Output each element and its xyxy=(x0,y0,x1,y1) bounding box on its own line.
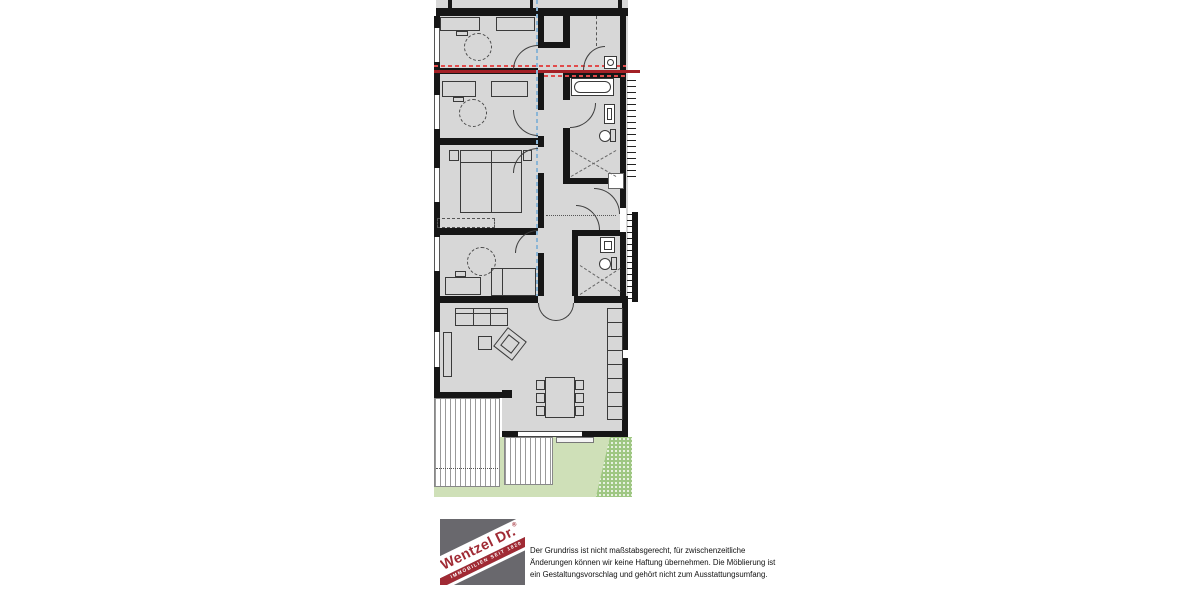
section-line-dashed xyxy=(544,75,626,77)
wall-right-exterior xyxy=(620,16,626,303)
wall-corridor-left xyxy=(538,253,544,296)
window xyxy=(434,332,440,367)
upper-cut-wall-mark xyxy=(448,0,452,8)
window xyxy=(434,28,440,62)
desk xyxy=(440,17,480,31)
wall-room-divider xyxy=(436,228,538,235)
terrace-window xyxy=(518,431,582,437)
toilet-bowl xyxy=(599,130,611,142)
facade-tick-marks xyxy=(627,214,632,302)
wall-corridor-left xyxy=(538,16,544,42)
entrance-door-opening xyxy=(620,208,626,232)
nightstand xyxy=(449,150,459,161)
facade-tick-marks xyxy=(627,80,636,177)
nightstand xyxy=(523,150,532,161)
window xyxy=(434,237,440,271)
sideboard xyxy=(443,332,452,377)
terrace-deck-left xyxy=(434,398,500,487)
dining-table xyxy=(545,377,575,418)
wall-neighbor-outer xyxy=(632,212,638,302)
washbasin-inner xyxy=(607,108,612,120)
wall-wc-top xyxy=(572,230,626,236)
bed xyxy=(491,268,536,296)
desk-extension xyxy=(455,271,466,277)
dining-chair xyxy=(575,380,584,390)
wardrobe-dashed xyxy=(437,218,495,228)
disclaimer-text: Der Grundriss ist nicht maßstabsgerecht,… xyxy=(530,545,775,581)
kitchen-units xyxy=(607,308,623,420)
wc-washbasin-inner xyxy=(604,241,612,250)
wall-corridor-left xyxy=(538,173,544,228)
coffee-table xyxy=(478,336,492,350)
wc-toilet-bowl xyxy=(599,258,611,270)
bathtub xyxy=(571,78,614,96)
utility-dashed-partition xyxy=(596,16,597,46)
disclaimer-line: ein Gestaltungsvorschlag und gehört nich… xyxy=(530,569,775,581)
dining-chair xyxy=(536,406,545,416)
wall-corridor-left xyxy=(538,136,544,147)
wall-living-step xyxy=(436,392,510,398)
disclaimer-line: Der Grundriss ist nicht maßstabsgerecht,… xyxy=(530,545,775,557)
desk-extension xyxy=(453,97,464,102)
double-bed xyxy=(460,150,522,213)
wall-bathroom-left xyxy=(563,128,570,180)
window xyxy=(434,95,440,129)
chair xyxy=(464,33,492,61)
wall-wc-left xyxy=(572,236,578,296)
terrace-door-step xyxy=(556,437,594,443)
dining-chair xyxy=(536,380,545,390)
washbasin xyxy=(604,104,615,124)
dining-chair xyxy=(575,393,584,403)
sofa-back-line xyxy=(456,313,507,314)
wc-washbasin xyxy=(600,237,615,253)
chair xyxy=(459,99,487,127)
wall-living-step-corner xyxy=(502,390,512,398)
bathtub-inner xyxy=(574,81,611,93)
wall-bathroom-bottom xyxy=(563,178,608,184)
dining-chair xyxy=(536,393,545,403)
disclaimer-line: Änderungen können wir keine Haftung über… xyxy=(530,557,775,569)
brand-logo: Wentzel Dr. ® IMMOBILIEN SEIT 1820 xyxy=(440,519,525,585)
logo-diagonal-band: Wentzel Dr. ® IMMOBILIEN SEIT 1820 xyxy=(440,519,525,585)
desk xyxy=(445,277,481,295)
terrace-joint-line xyxy=(436,468,498,469)
wall-room-divider xyxy=(436,138,538,145)
upper-cut-wall-mark xyxy=(530,0,533,8)
terrace-deck-right xyxy=(504,437,553,485)
window xyxy=(434,168,440,202)
wall-top xyxy=(436,8,628,16)
wall-living-top xyxy=(436,296,538,303)
sofa-seat-line xyxy=(473,309,474,325)
wall-utility-left xyxy=(563,16,570,48)
hall-dotted-line xyxy=(546,215,616,216)
wall-living-top xyxy=(574,296,628,303)
cabinet xyxy=(496,17,535,31)
washing-machine xyxy=(604,56,617,69)
washing-machine-drum xyxy=(607,59,614,66)
sofa xyxy=(455,308,508,326)
armchair-seat xyxy=(500,334,520,354)
cabinet xyxy=(491,81,528,97)
upper-cut-wall-mark xyxy=(618,0,622,8)
desk xyxy=(442,81,476,97)
dining-chair xyxy=(575,406,584,416)
wall-living-bottom xyxy=(502,431,518,437)
bed-pillow-line xyxy=(502,269,503,295)
wc-toilet-tank xyxy=(611,257,617,270)
sofa-seat-line xyxy=(490,309,491,325)
bed-head-line xyxy=(461,162,521,163)
desk-extension xyxy=(456,31,468,36)
bed-split-line xyxy=(491,151,492,212)
floor-plan xyxy=(434,0,640,497)
